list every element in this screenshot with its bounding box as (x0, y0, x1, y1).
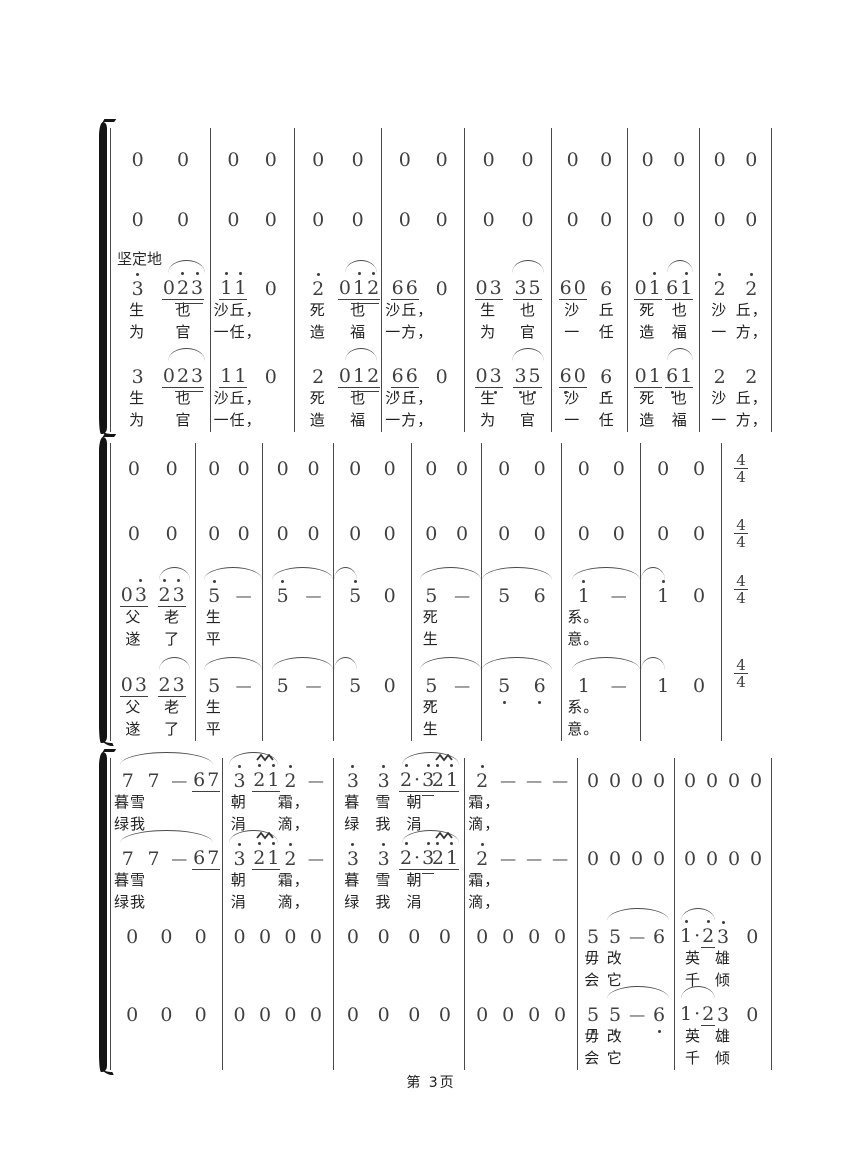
lyric-line: 霜， (465, 792, 577, 814)
beat: — (495, 770, 521, 792)
sixteenth-underline (422, 795, 434, 796)
lyric-line: 沙丘， (700, 300, 771, 322)
note-token: — (307, 770, 325, 792)
lyric-line (675, 814, 771, 836)
beat: — (521, 848, 547, 870)
time-signature-denominator: 4 (734, 533, 748, 550)
lyric-char (681, 719, 718, 741)
lyric-char: 任 (589, 410, 623, 432)
lyric-char (140, 870, 166, 892)
lyric-char: 死 (631, 388, 664, 410)
beat: 3 (368, 848, 399, 870)
note-token: 5 (276, 675, 290, 697)
note-token: 0 (641, 149, 655, 171)
beat: 0 (423, 149, 460, 171)
octave-up-dot (289, 843, 292, 846)
notes-row: 00 (111, 192, 210, 248)
beat: 7 (115, 770, 141, 792)
notes-row: 00 (196, 443, 263, 495)
note-token: 1 (656, 585, 670, 607)
lyric-char: 一 (703, 322, 736, 344)
note-token: 0 (482, 149, 496, 171)
note-token: 03 (475, 277, 503, 300)
lyric-char (304, 892, 330, 914)
note-token: 35 (513, 277, 541, 300)
octave-down-dot (430, 701, 433, 704)
lyric-char: 雄 (708, 1026, 738, 1048)
lyric-line: 父老 (111, 697, 195, 719)
measure: 2———霜，滴，2———霜，滴，00000000 (464, 758, 577, 1070)
beat: — (601, 585, 636, 607)
lyric-char (581, 814, 604, 836)
note-token: — (170, 770, 188, 792)
notes-row: 0000 (334, 914, 465, 948)
lyric-char (723, 792, 746, 814)
octave-up-dot (372, 272, 375, 275)
lyric-char: 生 (468, 300, 508, 322)
note-token: 7 (147, 848, 161, 870)
staff-block: 1·230英雄千倾 (675, 914, 771, 992)
lyric-line (722, 629, 760, 651)
octave-down-dot (519, 391, 522, 394)
lyric-char: 生 (199, 607, 229, 629)
lyric-char (723, 892, 746, 914)
beat: — (303, 848, 328, 870)
note-token: 0 (258, 926, 272, 948)
note-token: 7 (121, 848, 135, 870)
lyric-char (521, 892, 547, 914)
note-token: 5 (497, 585, 511, 607)
staff-block: 332·321暮雪朝绿我涓 (334, 836, 465, 914)
beat: 67 (192, 769, 218, 792)
lyric-char (266, 629, 298, 651)
lyric-line (482, 629, 561, 651)
beat: 0 (298, 523, 329, 545)
staff-block: 00 (641, 443, 721, 495)
lyric-char (304, 1048, 330, 1070)
lyric-char (252, 870, 278, 892)
beat: 2·3 (399, 847, 430, 870)
note-token: 0 (455, 458, 469, 480)
staff-block: 00 (465, 192, 551, 248)
beat: 0 (447, 458, 478, 480)
lyric-line: 死 (412, 697, 482, 719)
note-token: 0 (207, 523, 221, 545)
lyric-char: 方， (735, 410, 768, 432)
beat: — (229, 675, 258, 697)
beat: 0 (338, 1004, 369, 1026)
lyric-line: 一任， (211, 410, 294, 432)
measure: 00000335生也为官0335生也为官 (464, 128, 551, 432)
note-token: — (453, 585, 471, 607)
beat: 0 (738, 926, 767, 948)
lyric-line: 沙丘， (211, 300, 294, 322)
lyric-char: 福 (663, 410, 696, 432)
lyric-char (166, 870, 192, 892)
staff-block: 0000 (223, 992, 333, 1070)
beat: 0 (299, 209, 338, 231)
staff-block: 77—67暮雪绿我 (111, 836, 222, 914)
note-token: 2·3 (399, 769, 435, 792)
note-token: 1 (656, 675, 670, 697)
system-3: 77—67暮雪绿我77—67暮雪绿我0000003212—朝霜，涓滴，3212—… (110, 758, 772, 1070)
note-token: 0 (351, 209, 365, 231)
octave-up-dot (163, 579, 166, 582)
note-token: — (610, 675, 628, 697)
lyric-char: 绿 (337, 814, 368, 836)
lyric-line: 千倾 (675, 1048, 771, 1070)
octave-down-dot (658, 1030, 661, 1033)
beat: 0 (338, 209, 377, 231)
beat: 66 (386, 277, 423, 300)
beat: 0 (723, 848, 745, 870)
notes-row: 44 (722, 495, 760, 573)
beat: 61 (663, 365, 695, 388)
note-token: 2 (475, 770, 489, 792)
mordent-icon (435, 832, 455, 840)
beat: 0 (227, 926, 252, 948)
beat: 5 (267, 675, 298, 697)
beat: 0 (416, 523, 447, 545)
notes-row: 3212— (223, 758, 333, 792)
beat: 5 (604, 926, 626, 948)
beat: 0 (115, 523, 153, 545)
beat: 0 (521, 1004, 547, 1026)
lyric-char: 遂 (114, 719, 153, 741)
notes-row: 000 (111, 992, 222, 1026)
note-token: 0 (683, 848, 697, 870)
lyric-char (738, 970, 768, 992)
note-token: 0 (630, 770, 644, 792)
beat: 0 (632, 149, 664, 171)
beat: 2 (469, 848, 495, 870)
lyric-char (485, 719, 521, 741)
beat: 03 (115, 674, 153, 697)
beat: 2·3 (399, 769, 430, 792)
lyric-char (304, 870, 330, 892)
note-token: 0 (348, 523, 362, 545)
lyric-char (226, 1048, 252, 1070)
lyric-line: 一方， (700, 322, 771, 344)
notes-row: 1— (562, 573, 640, 607)
note-token: 61 (665, 365, 693, 388)
staff-block: 50 (334, 573, 411, 651)
note-token: 0 (346, 1004, 360, 1026)
lyric-char: 意。 (565, 629, 601, 651)
beat: 0 (252, 926, 277, 948)
octave-up-dot (139, 579, 142, 582)
lyric-line (334, 629, 411, 651)
beat: 0 (589, 209, 622, 231)
octave-up-dot (405, 842, 408, 845)
notes-row: 0000 (223, 992, 333, 1026)
note-token: 23 (158, 674, 186, 697)
lyric-line: 朝霜， (223, 870, 333, 892)
lyric-char (644, 719, 681, 741)
notes-row: 00 (552, 128, 627, 192)
note-token: 0 (683, 770, 697, 792)
note-token: 5 (276, 585, 290, 607)
lyric-char (522, 607, 558, 629)
beat: 0 (298, 458, 329, 480)
beat: 0 (704, 209, 736, 231)
note-token: 0 (608, 770, 622, 792)
staff-block: 00 (465, 128, 551, 192)
notes-row: 77—67 (111, 758, 222, 792)
beat: 0 (648, 848, 670, 870)
lyric-char (252, 388, 290, 410)
note-token: 21 (431, 847, 459, 870)
staff-block: 3212—朝霜，涓滴， (223, 836, 333, 914)
lyric-line: 沙丘， (382, 388, 464, 410)
lyric-char (226, 1026, 252, 1048)
beat: 0 (386, 209, 423, 231)
lyric-char (548, 948, 574, 970)
lyric-char (430, 792, 461, 814)
notes-row: 2——— (465, 836, 577, 870)
notes-row: 332·321 (334, 758, 465, 792)
beat: 0 (252, 209, 289, 231)
lyric-line: 遂了 (111, 629, 195, 651)
notes-row: 00 (334, 443, 411, 495)
lyric-char (166, 892, 192, 914)
staff-block: 44 (722, 495, 760, 573)
notes-row: 00 (382, 192, 464, 248)
lyric-char: 官 (160, 322, 206, 344)
lyric-char (226, 970, 252, 992)
beat: 0 (679, 848, 701, 870)
beat: 2 (278, 770, 303, 792)
octave-up-dot (427, 842, 430, 845)
note-token: 0 (705, 770, 719, 792)
beat: 0 (252, 366, 289, 388)
octave-up-dot (238, 843, 241, 846)
octave-up-dot (317, 273, 320, 276)
octave-up-dot (351, 843, 354, 846)
note-token: 6 (599, 278, 613, 300)
lyric-line: 暮雪朝 (334, 792, 465, 814)
notes-row: 0000 (675, 758, 771, 792)
beat: 0 (368, 1004, 399, 1026)
time-signature: 44 (734, 518, 748, 550)
note-token: 5 (348, 585, 362, 607)
lyric-line: 生也 (465, 300, 551, 322)
note-token: 0 (226, 209, 240, 231)
beat: 0 (704, 149, 736, 171)
lyric-line (263, 697, 333, 719)
lyric-line: 平 (196, 719, 263, 741)
beat: 0 (399, 1004, 430, 1026)
notes-row: 56 (482, 651, 561, 697)
staff-block: 0335生也为官 (465, 344, 551, 432)
lyric-char (521, 792, 547, 814)
lyric-char (399, 948, 430, 970)
lyric-char (399, 1048, 430, 1070)
notes-row: 00 (562, 443, 640, 495)
lyric-char: 倾 (708, 1048, 738, 1070)
note-token: 03 (475, 365, 503, 388)
note-token: 0 (608, 848, 622, 870)
lyric-line: 暮雪 (111, 870, 222, 892)
measure: 00005—5— (262, 443, 333, 741)
lyric-char: 也 (663, 300, 696, 322)
beat: 1 (645, 585, 681, 607)
staff-block: 660沙丘，一方， (382, 248, 464, 344)
beat: 012 (338, 365, 377, 388)
beat: 5 (338, 585, 373, 607)
lyric-char (114, 970, 149, 992)
measure: 00000161死也造福0161死也造福 (627, 128, 699, 432)
note-token: 0 (264, 366, 278, 388)
notes-row: 50 (334, 573, 411, 607)
beat: 0 (522, 458, 557, 480)
lyric-char (495, 870, 521, 892)
beat: 0 (604, 848, 626, 870)
beat: 0 (416, 458, 447, 480)
lyric-char: 福 (338, 410, 378, 432)
lyric-char (114, 948, 149, 970)
lyric-line (675, 870, 771, 892)
note-token: 1·2 (679, 925, 715, 948)
beat: — (303, 770, 328, 792)
beat: 03 (469, 365, 508, 388)
lyric-line: 造福 (295, 322, 382, 344)
measure: 00001—系。意。1—系。意。 (561, 443, 640, 741)
lyric-char: 遂 (114, 629, 153, 651)
notes-row: 00 (196, 495, 263, 573)
lyric-char: 也 (508, 300, 548, 322)
beat: 0 (115, 149, 160, 171)
lyric-char: 涓 (226, 892, 252, 914)
staff-block: 44 (722, 573, 760, 651)
beat: 3 (338, 848, 369, 870)
lyric-char (266, 697, 298, 719)
beat: — (495, 848, 521, 870)
note-token: 5 (207, 585, 221, 607)
slur-arc (168, 348, 204, 361)
note-token: 0 (656, 458, 670, 480)
staff-block: 56 (482, 573, 561, 651)
staff-block: 00 (111, 495, 195, 573)
note-token: — (170, 848, 188, 870)
lyric-line: 绿我 (111, 892, 222, 914)
beat: 7 (115, 848, 141, 870)
lyric-char (252, 1026, 278, 1048)
lyric-char: 官 (160, 410, 206, 432)
staff-block: 1—系。意。 (562, 651, 640, 741)
lyric-line: 造福 (628, 322, 699, 344)
note-token: 0 (672, 149, 686, 171)
notes-row: 56 (482, 573, 561, 607)
beat: 0 (469, 209, 508, 231)
lyric-char (604, 792, 627, 814)
staff-block: 0000 (578, 836, 674, 914)
note-token: 0 (276, 523, 290, 545)
notes-row: 22 (700, 344, 771, 388)
lyric-line: 系。 (562, 607, 640, 629)
lyric-line: 意。 (562, 719, 640, 741)
system-bracket (99, 752, 107, 1072)
note-token: 60 (559, 277, 587, 300)
lyric-char (423, 322, 461, 344)
lyric-char (678, 870, 701, 892)
beat: 1 (566, 585, 601, 607)
lyric-char (485, 629, 521, 651)
lyric-char (149, 970, 184, 992)
beat: 0 (735, 209, 767, 231)
notes-row: 0323 (111, 651, 195, 697)
note-token: 0 (435, 149, 449, 171)
note-token: 0 (482, 209, 496, 231)
notes-row: 606 (552, 270, 627, 300)
lyric-char (337, 1026, 368, 1048)
note-token: 0 (131, 209, 145, 231)
note-token: 5 (424, 585, 438, 607)
note-token: 2 (713, 366, 727, 388)
lyric-line: 生 (196, 697, 263, 719)
note-token: 0 (258, 1004, 272, 1026)
octave-up-dot (239, 272, 242, 275)
score-page: 0000坚定地3023生也为官3023生也为官0000110沙丘，一任，110沙… (0, 0, 862, 1156)
lyric-char: 丘 (589, 300, 623, 322)
note-token: 3 (716, 1004, 730, 1026)
note-token: 2 (311, 278, 325, 300)
notes-row: 00 (111, 128, 210, 192)
lyric-char: 老 (153, 607, 192, 629)
lyric-char: 千 (678, 1048, 708, 1070)
mordent-icon (256, 832, 276, 840)
lyric-char: 滴， (468, 814, 494, 836)
lyric-char (252, 792, 278, 814)
notes-row: 00 (263, 495, 333, 573)
notes-row: 110 (211, 344, 294, 388)
beat: 0 (215, 209, 252, 231)
lyric-char (252, 300, 290, 322)
beat: 5 (200, 585, 229, 607)
lyric-char: 一方， (385, 410, 423, 432)
staff-block: 0161死也造福 (628, 344, 699, 432)
staff-block: 3212—朝霜，涓滴， (223, 758, 333, 836)
staff-block: 606沙丘一任 (552, 248, 627, 344)
beat: 0 (469, 149, 508, 171)
staff-block: 5—死生 (412, 651, 482, 741)
lyric-line: 为官 (111, 410, 210, 432)
note-token: 0 (630, 848, 644, 870)
lyric-char (649, 948, 672, 970)
staff-block: 00 (641, 495, 721, 573)
note-token: 0 (612, 523, 626, 545)
lyric-char (278, 1026, 304, 1048)
lyric-char (738, 1048, 768, 1070)
note-token: 0 (501, 926, 515, 948)
beat: 7 (141, 848, 167, 870)
staff-block: 0000 (334, 914, 465, 992)
slur-arc (120, 752, 213, 765)
octave-down-dot (503, 701, 506, 704)
beat: 0 (632, 209, 664, 231)
lyric-char (337, 607, 373, 629)
lyric-line (482, 607, 561, 629)
lyric-char: 生 (114, 388, 160, 410)
beat: 0 (423, 209, 460, 231)
lyric-char (495, 814, 521, 836)
lyric-char (738, 1026, 768, 1048)
lyric-char: 丘， (735, 388, 768, 410)
staff-block: 55—6毋改会它 (578, 992, 674, 1070)
note-token: 0 (127, 523, 141, 545)
lyric-char (701, 870, 724, 892)
beat: 0 (399, 926, 430, 948)
